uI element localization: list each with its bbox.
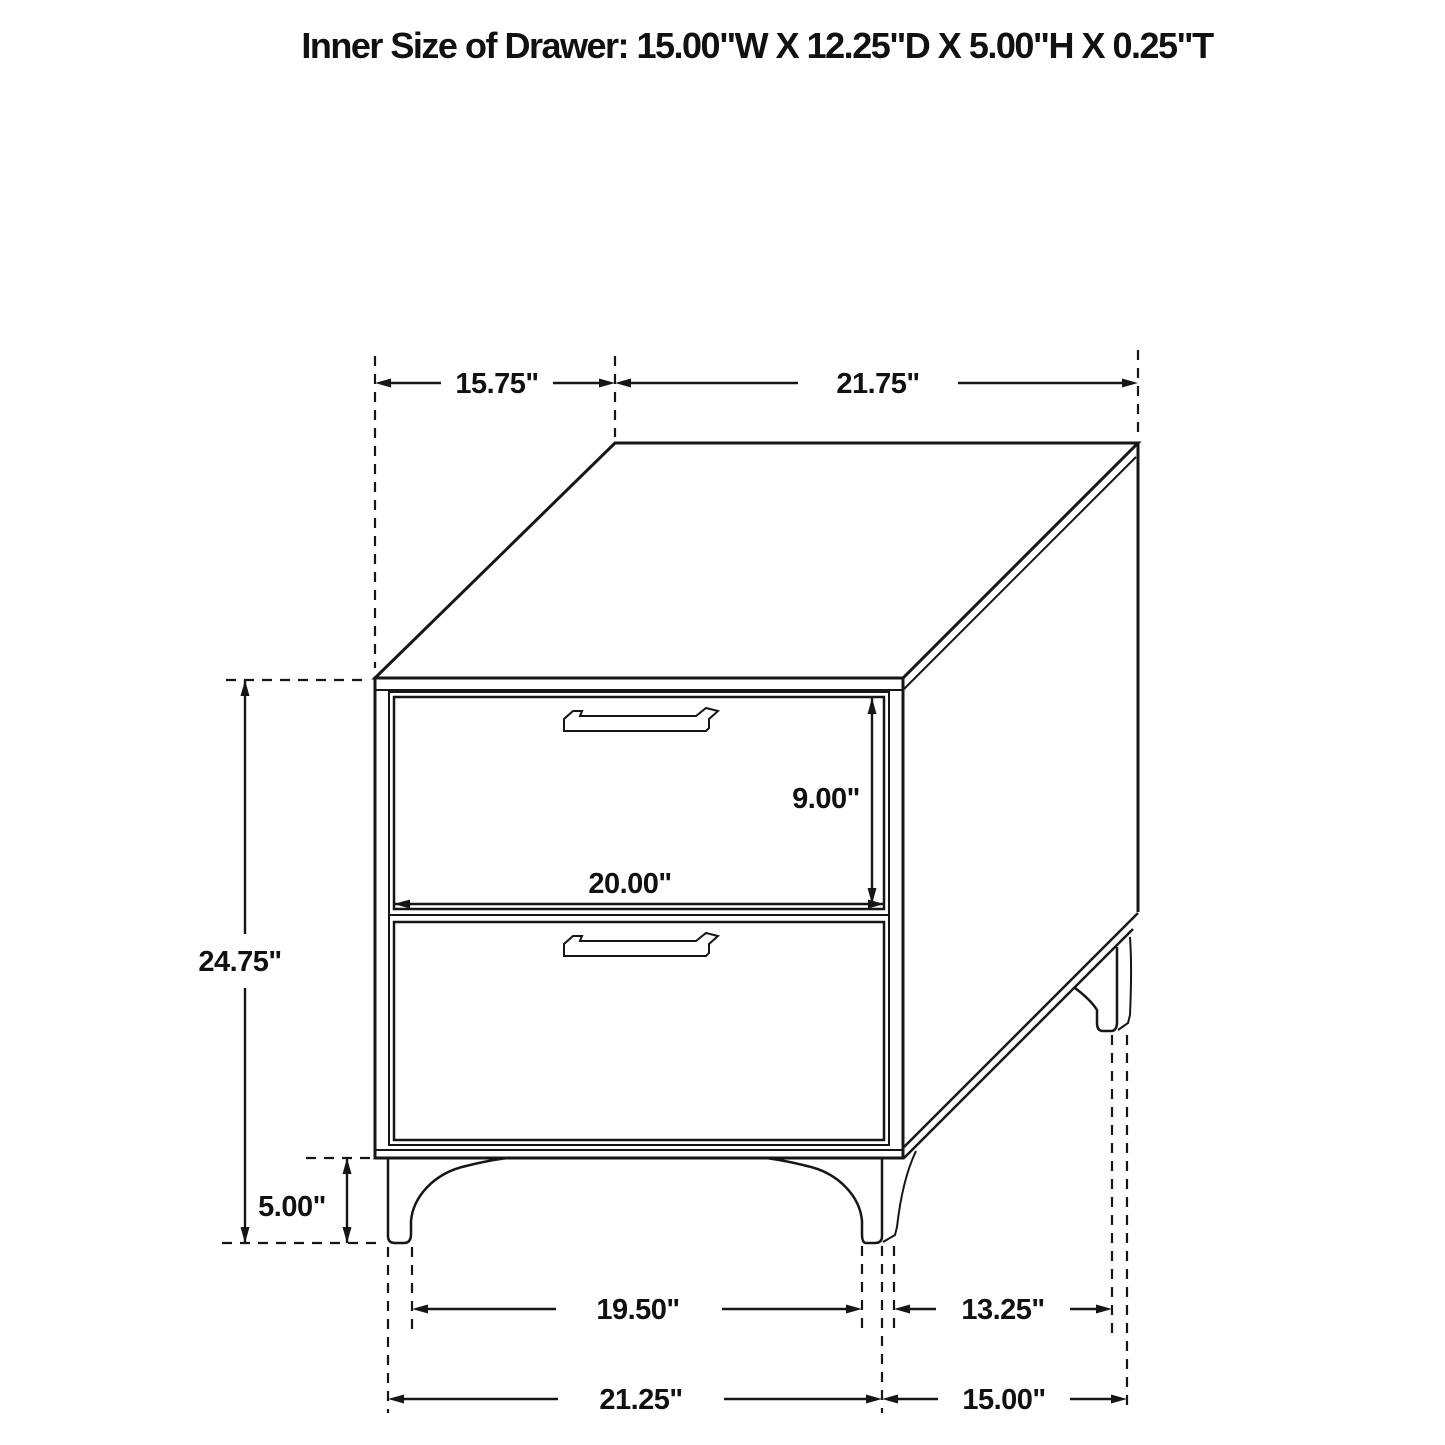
top-dimensions: 15.75" 21.75" [375,350,1138,668]
dim-label-feet-inner-depth: 13.25" [961,1294,1044,1326]
front-right-leg-side [883,1151,916,1242]
front-face [375,678,903,1158]
drawer-dimensions: 9.00" 20.00" [394,698,884,909]
dim-label-body-height: 24.75" [198,946,281,978]
front-left-leg [388,1158,508,1243]
dim-label-feet-outer-width: 21.25" [599,1384,682,1416]
front-right-leg [765,1158,882,1243]
top-drawer-handle [564,708,718,731]
top-face [375,443,1138,678]
dimension-diagram-page: Inner Size of Drawer: 15.00"W X 12.25"D … [0,0,1445,1445]
top-slab-side-edge [903,457,1136,690]
left-dimensions: 24.75" 5.00" [198,680,382,1243]
dim-label-top-depth: 15.75" [455,368,538,400]
back-right-leg [1075,947,1117,1031]
back-right-leg-side [1118,937,1131,1030]
bottom-drawer-front [394,922,884,1140]
nightstand-drawing [375,443,1138,1243]
side-panel-bottom-edge-lower [904,929,1133,1158]
dim-label-drawer-height: 9.00" [792,783,860,815]
diagram-title: Inner Size of Drawer: 15.00"W X 12.25"D … [301,25,1214,66]
nightstand-dimension-drawing: Inner Size of Drawer: 15.00"W X 12.25"D … [0,0,1445,1445]
dim-label-leg-height: 5.00" [258,1191,326,1223]
bottom-dimensions-inner: 19.50" 13.25" [412,1035,1112,1333]
bottom-drawer-handle [564,933,718,956]
dim-label-feet-inner-width: 19.50" [596,1294,679,1326]
bottom-dimensions-outer: 21.25" 15.00" [388,1035,1127,1416]
dim-label-top-width: 21.75" [836,368,919,400]
front-inner-frame [389,692,889,1145]
dim-label-drawer-width: 20.00" [588,868,671,900]
dim-label-feet-outer-depth: 15.00" [962,1384,1045,1416]
